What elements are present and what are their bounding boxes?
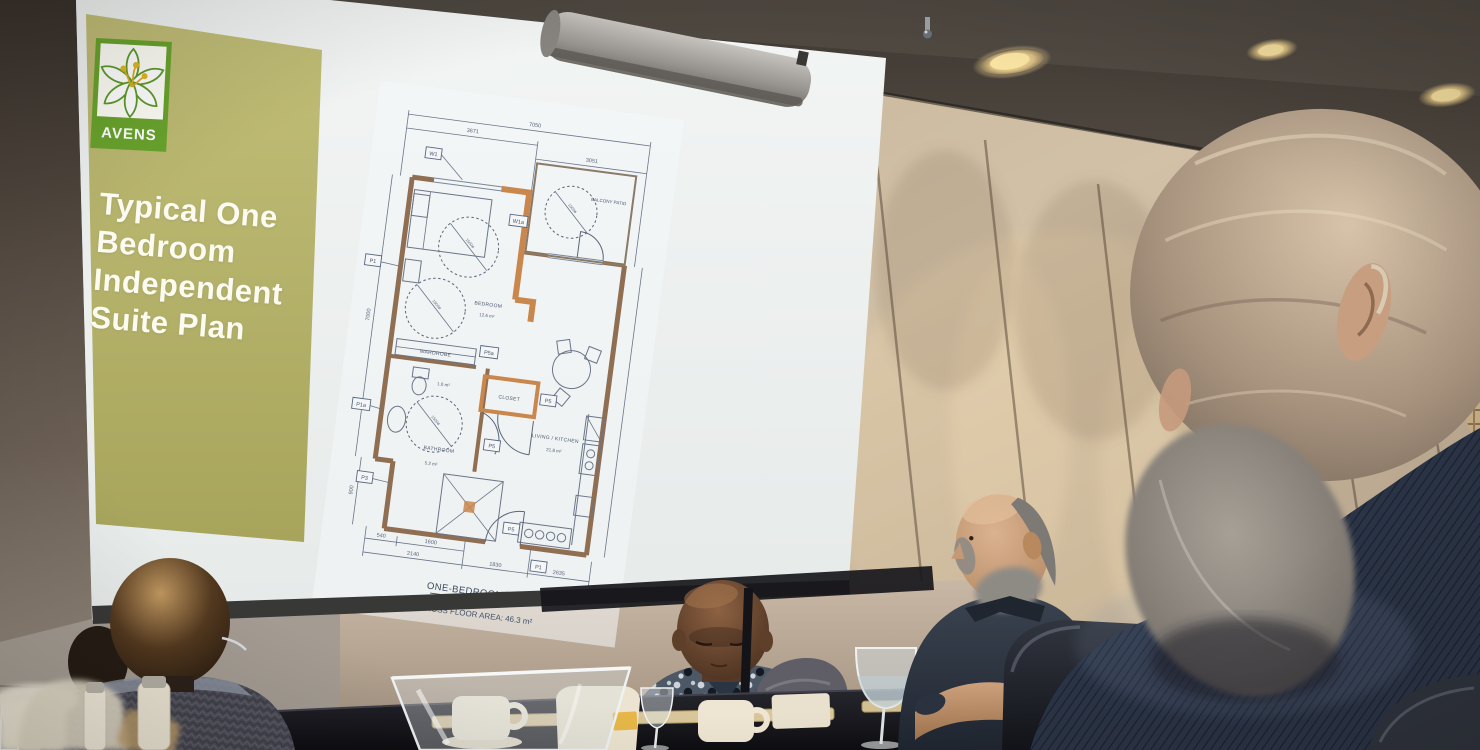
photo-vignette: [0, 0, 1480, 750]
slide-title: Typical One Bedroom Independent Suite Pl…: [89, 185, 290, 351]
scene-graphic: AVENS 7050 3671 3051 7000 90: [0, 0, 1480, 750]
photo-of-presentation-room: AVENS 7050 3671 3051 7000 90: [0, 0, 1480, 750]
